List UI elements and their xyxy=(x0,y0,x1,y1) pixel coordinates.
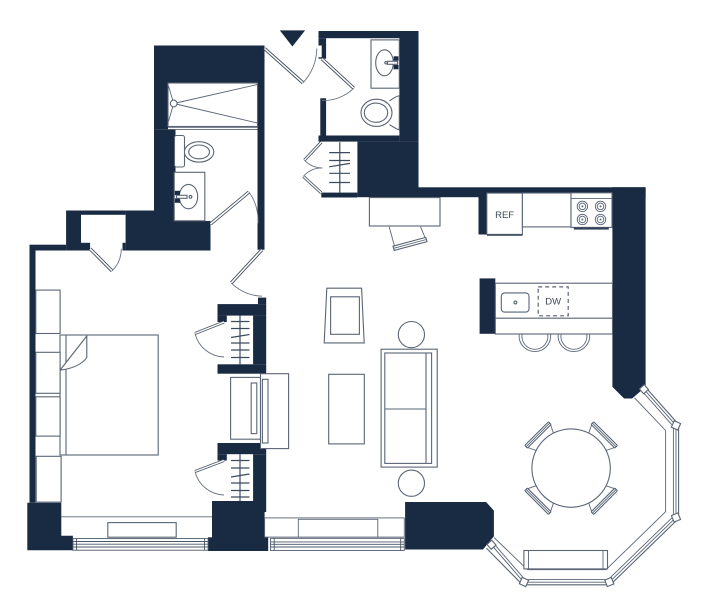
svg-text:DW: DW xyxy=(545,297,561,308)
svg-text:REF: REF xyxy=(495,210,514,221)
